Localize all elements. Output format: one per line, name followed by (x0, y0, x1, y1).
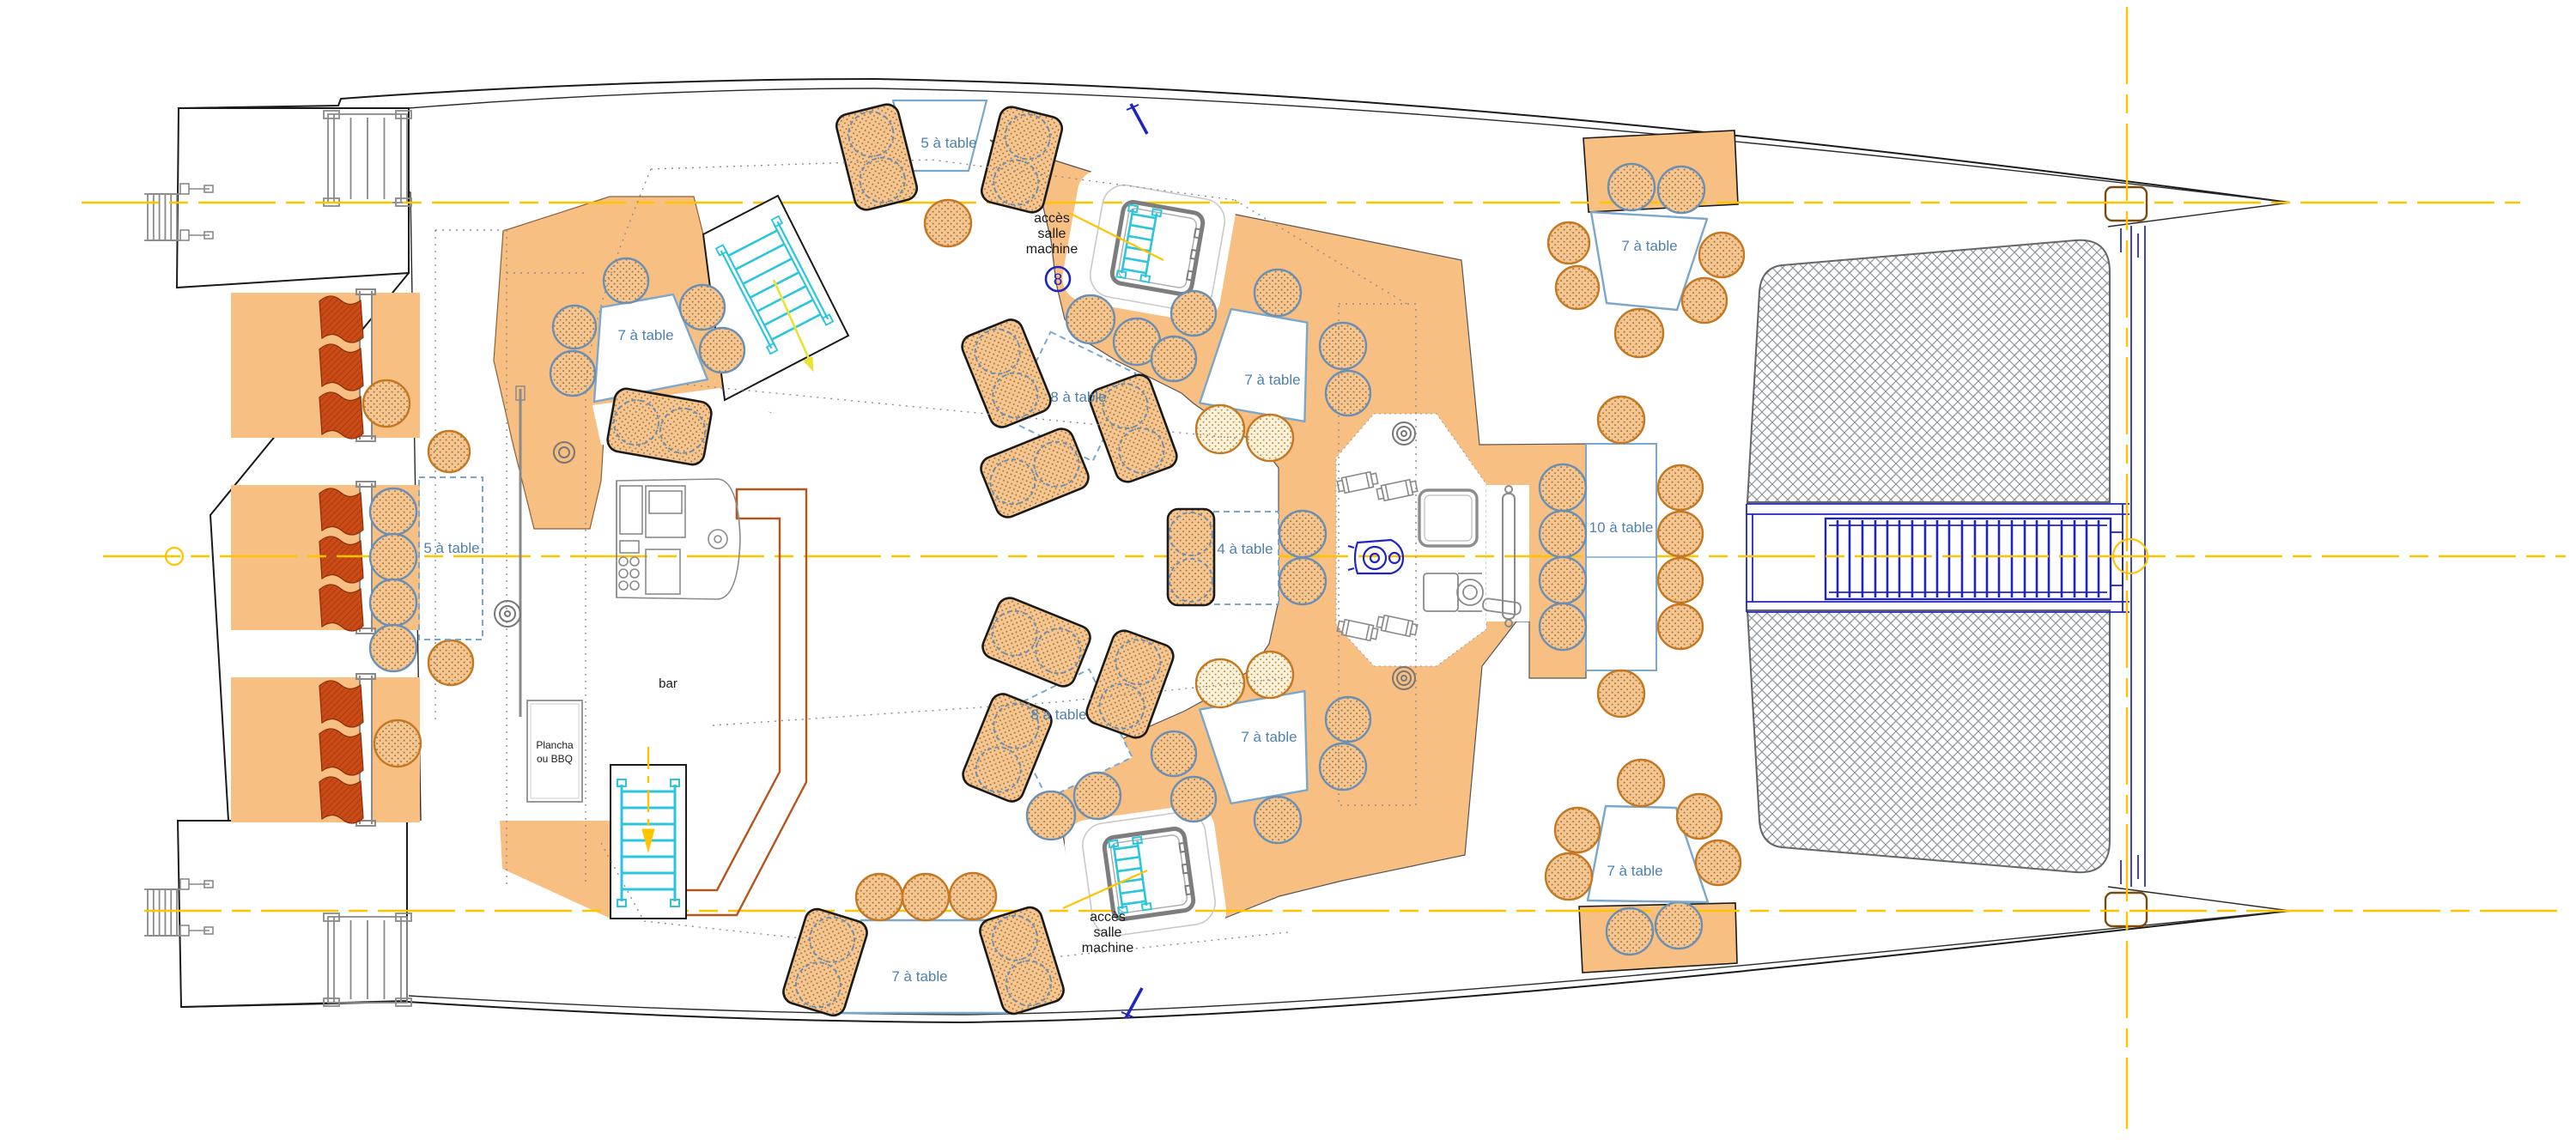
svg-text:ou BBQ: ou BBQ (537, 753, 573, 765)
svg-text:8 à table: 8 à table (1050, 389, 1106, 405)
svg-text:7 à table: 7 à table (1241, 729, 1297, 745)
svg-text:8: 8 (1054, 271, 1063, 289)
svg-text:salle: salle (1094, 925, 1122, 940)
svg-text:5 à table: 5 à table (920, 135, 976, 151)
svg-text:7 à table: 7 à table (891, 968, 947, 985)
svg-text:4 à table: 4 à table (1217, 541, 1273, 557)
svg-text:salle: salle (1038, 227, 1066, 241)
svg-text:7 à table: 7 à table (1244, 372, 1300, 388)
svg-text:Plancha: Plancha (536, 739, 574, 751)
svg-text:8 à table: 8 à table (1030, 706, 1086, 723)
svg-text:accès: accès (1090, 910, 1126, 925)
svg-text:5 à table: 5 à table (423, 540, 479, 556)
svg-text:bar: bar (659, 676, 677, 691)
svg-text:7 à table: 7 à table (1607, 863, 1662, 879)
svg-text:10 à table: 10 à table (1589, 519, 1654, 536)
svg-text:7 à table: 7 à table (1621, 238, 1677, 254)
svg-text:accès: accès (1034, 211, 1070, 226)
svg-text:machine: machine (1026, 242, 1078, 257)
svg-text:7 à table: 7 à table (617, 327, 673, 343)
